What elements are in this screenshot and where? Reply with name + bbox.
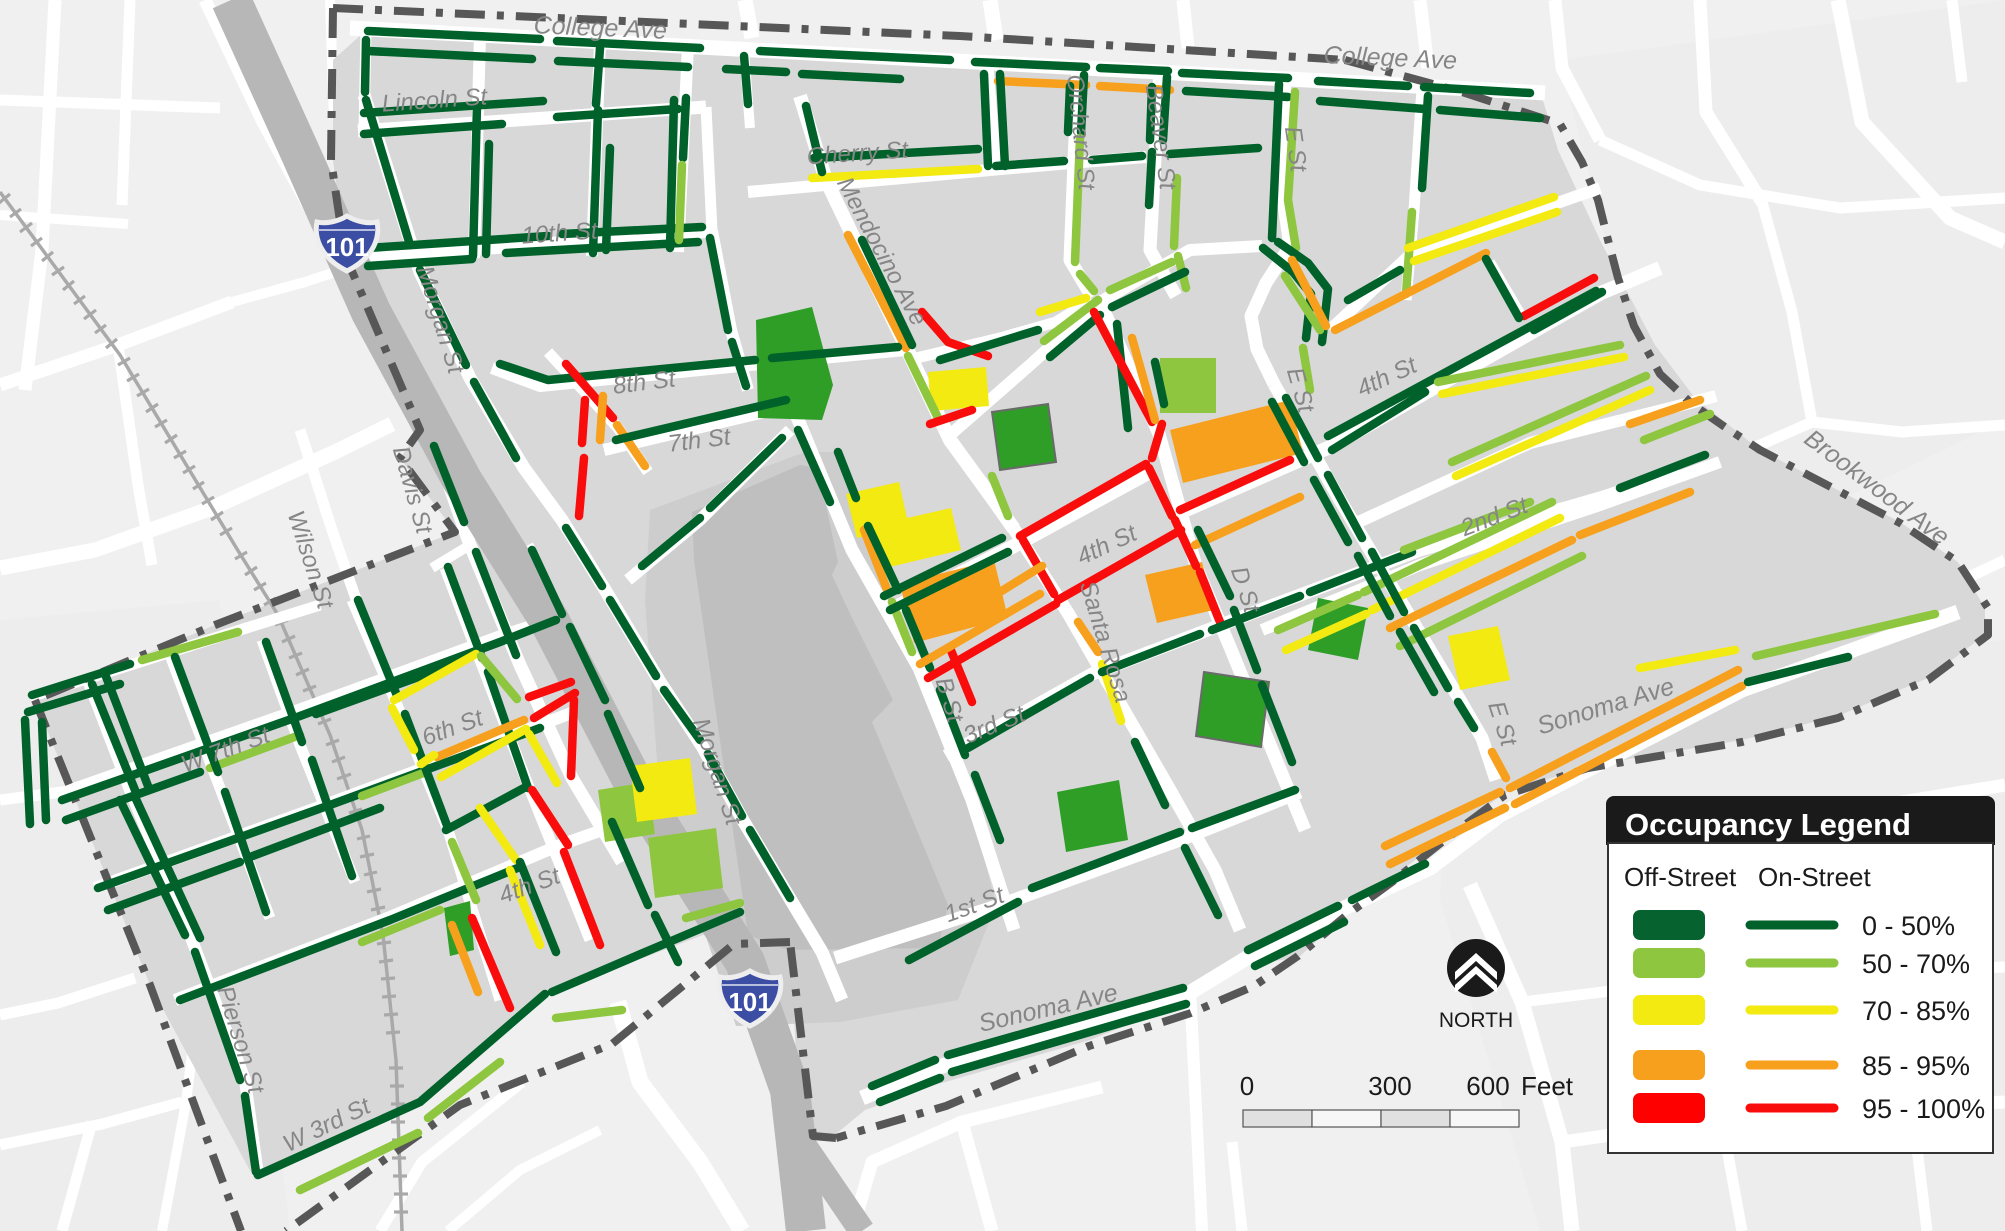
svg-text:101: 101 xyxy=(728,987,771,1017)
svg-text:10th St: 10th St xyxy=(521,217,600,249)
svg-text:85 - 95%: 85 - 95% xyxy=(1862,1051,1970,1081)
svg-text:0 - 50%: 0 - 50% xyxy=(1862,911,1955,941)
svg-text:95 - 100%: 95 - 100% xyxy=(1862,1094,1985,1124)
svg-text:300: 300 xyxy=(1368,1071,1411,1101)
svg-text:College Ave: College Ave xyxy=(1323,41,1458,75)
svg-text:Off-Street: Off-Street xyxy=(1624,862,1737,892)
svg-text:600: 600 xyxy=(1466,1071,1509,1101)
svg-text:College Ave: College Ave xyxy=(533,11,668,45)
svg-text:Feet: Feet xyxy=(1521,1071,1574,1101)
svg-text:70 - 85%: 70 - 85% xyxy=(1862,996,1970,1026)
svg-text:0: 0 xyxy=(1240,1071,1254,1101)
svg-text:50 - 70%: 50 - 70% xyxy=(1862,949,1970,979)
svg-text:101: 101 xyxy=(325,232,368,262)
svg-text:On-Street: On-Street xyxy=(1758,862,1871,892)
svg-text:Occupancy Legend: Occupancy Legend xyxy=(1625,807,1911,842)
svg-text:NORTH: NORTH xyxy=(1439,1009,1513,1032)
